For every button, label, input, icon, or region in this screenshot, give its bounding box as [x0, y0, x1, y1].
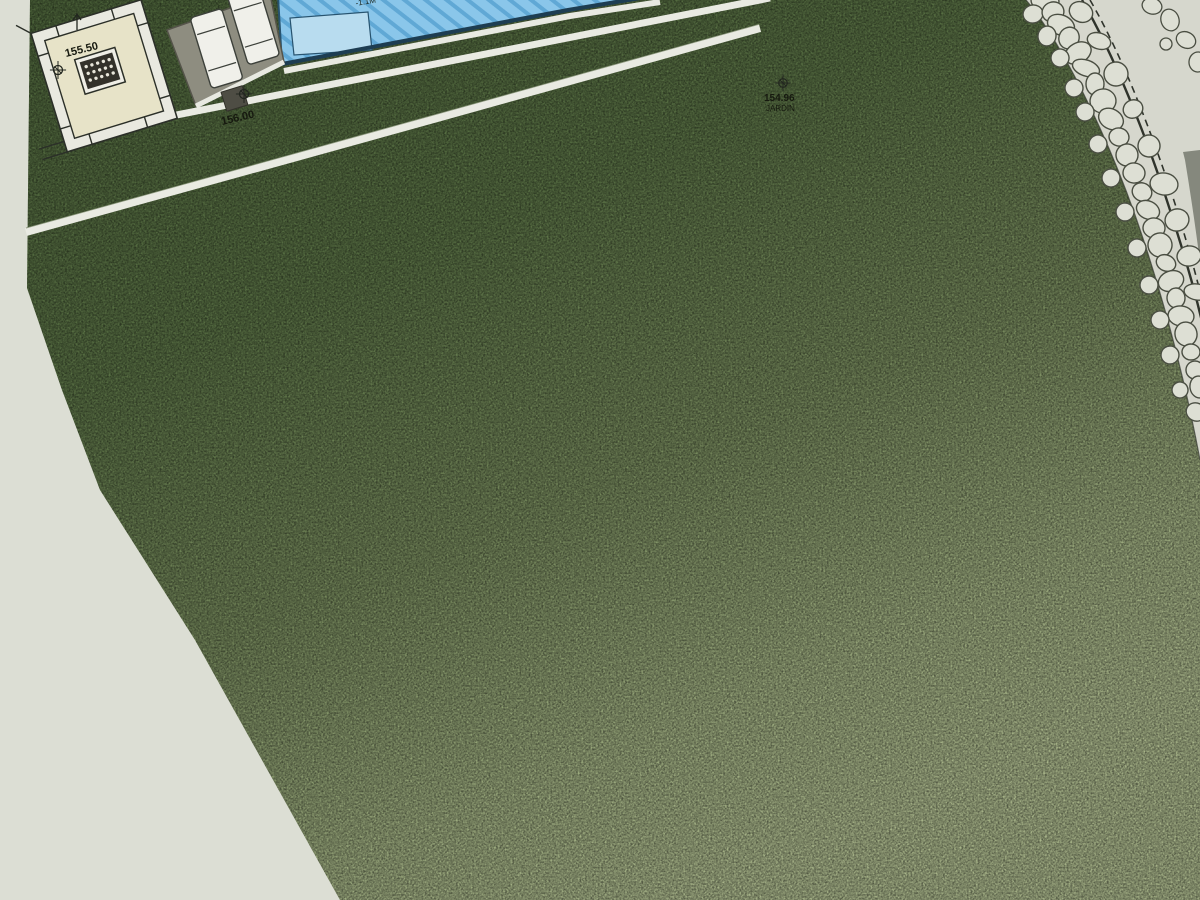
- svg-text:154.96: 154.96: [764, 93, 795, 104]
- svg-text:JARDIN: JARDIN: [766, 104, 795, 113]
